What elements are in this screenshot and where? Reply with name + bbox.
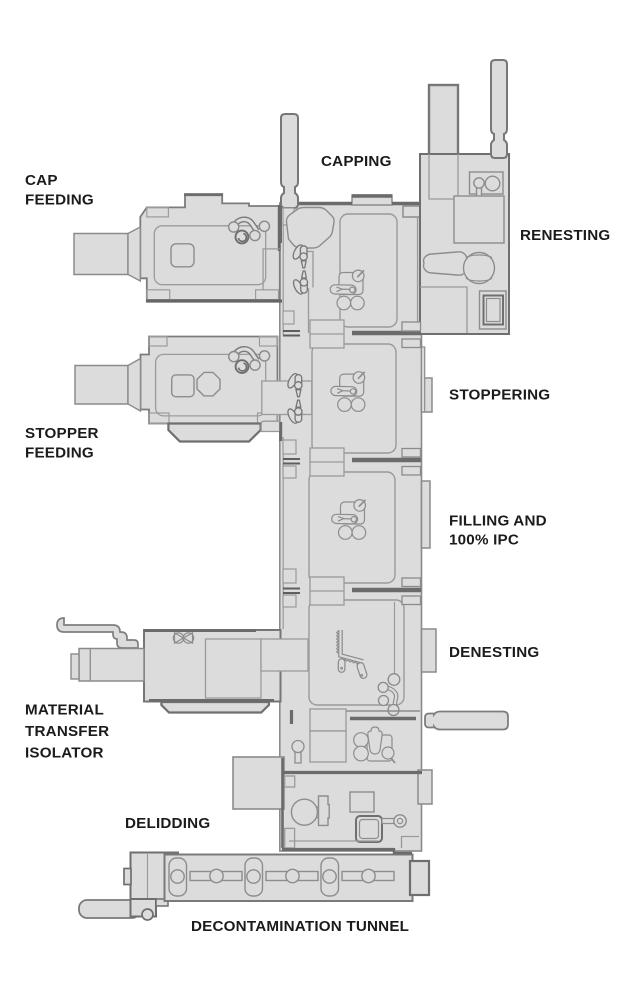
svg-text:DECONTAMINATION TUNNEL: DECONTAMINATION TUNNEL xyxy=(191,918,409,935)
svg-text:CAPPING: CAPPING xyxy=(321,153,392,170)
svg-text:DENESTING: DENESTING xyxy=(449,644,539,661)
svg-text:FILLING AND: FILLING AND xyxy=(449,513,547,530)
svg-text:STOPPER: STOPPER xyxy=(25,425,99,442)
svg-text:DELIDDING: DELIDDING xyxy=(125,815,210,832)
svg-text:MATERIAL: MATERIAL xyxy=(25,702,104,719)
svg-text:RENESTING: RENESTING xyxy=(520,227,610,244)
svg-text:CAP: CAP xyxy=(25,172,58,189)
svg-text:STOPPERING: STOPPERING xyxy=(449,387,550,404)
svg-text:FEEDING: FEEDING xyxy=(25,192,94,209)
svg-text:100% IPC: 100% IPC xyxy=(449,532,519,549)
svg-text:TRANSFER: TRANSFER xyxy=(25,723,109,740)
svg-text:FEEDING: FEEDING xyxy=(25,445,94,462)
svg-text:ISOLATOR: ISOLATOR xyxy=(25,745,104,762)
